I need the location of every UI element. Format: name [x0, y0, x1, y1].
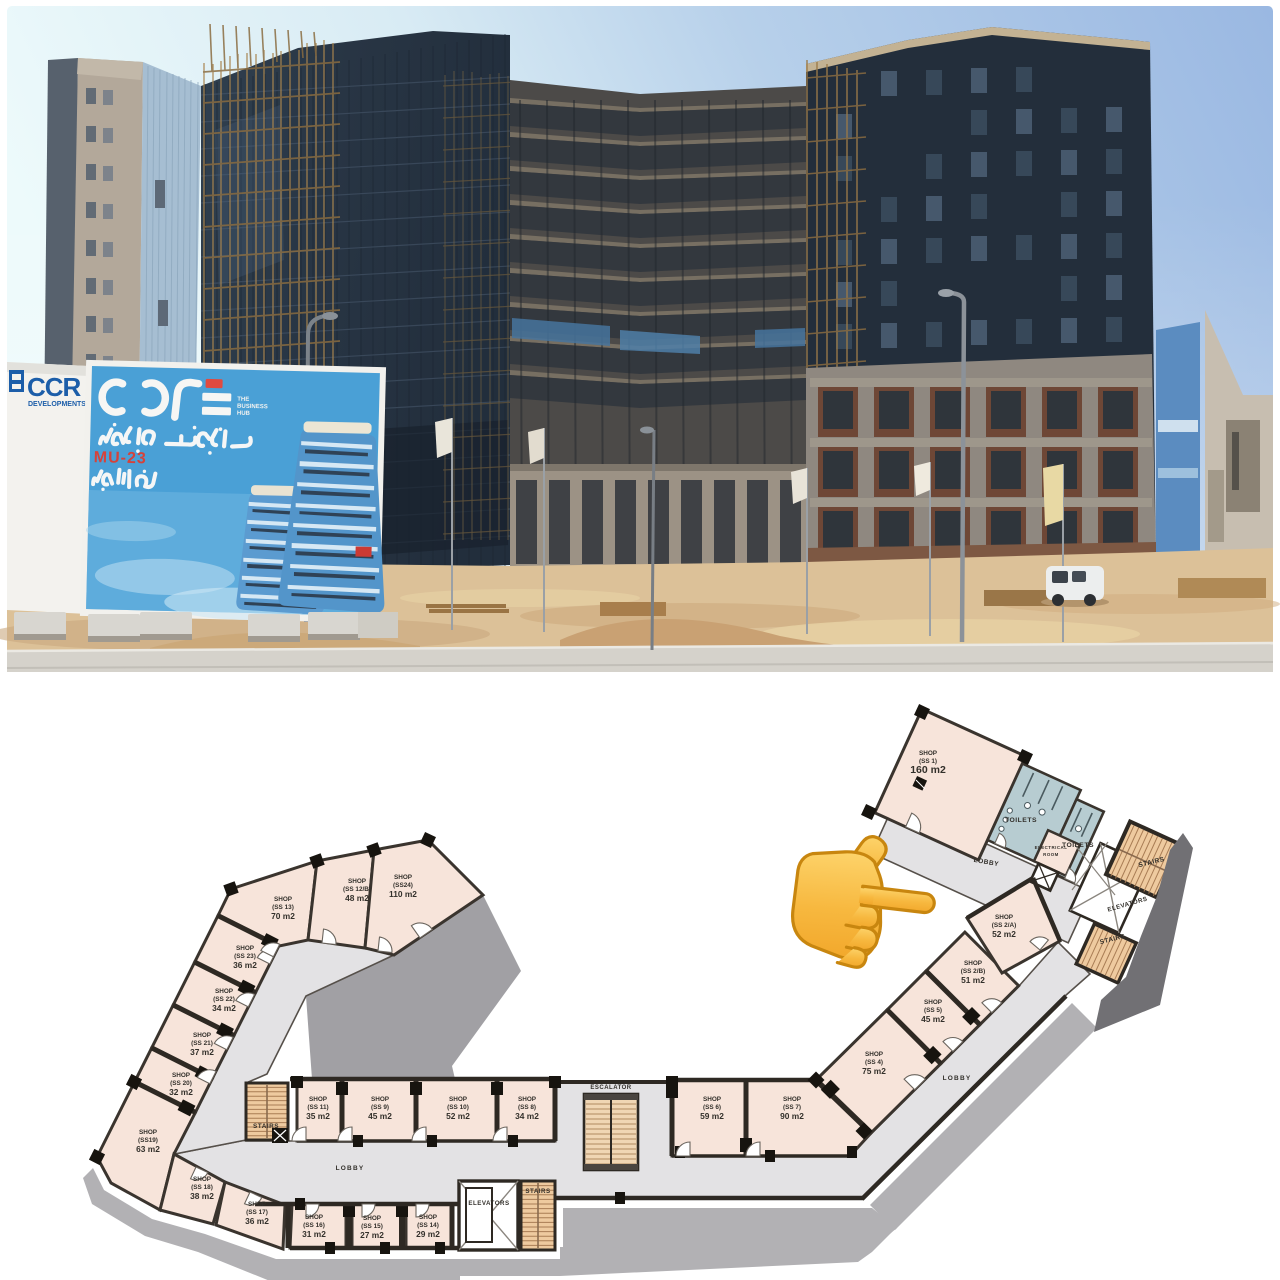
svg-text:35 m2: 35 m2	[306, 1111, 330, 1121]
svg-text:(SS 11): (SS 11)	[307, 1104, 328, 1111]
svg-text:48 m2: 48 m2	[345, 893, 369, 903]
svg-text:ESCALATOR: ESCALATOR	[590, 1085, 631, 1091]
svg-text:SHOP: SHOP	[783, 1096, 802, 1103]
svg-text:52 m2: 52 m2	[446, 1111, 470, 1121]
svg-text:(SS 4): (SS 4)	[865, 1059, 883, 1066]
svg-text:70 m2: 70 m2	[271, 911, 295, 921]
svg-text:(SS24): (SS24)	[393, 882, 413, 889]
svg-text:59 m2: 59 m2	[700, 1111, 724, 1121]
svg-text:(SS 13): (SS 13)	[272, 904, 294, 911]
svg-text:SHOP: SHOP	[371, 1096, 390, 1103]
svg-text:DEVELOPMENTS: DEVELOPMENTS	[28, 401, 86, 408]
svg-text:ELECTRICAL: ELECTRICAL	[1035, 845, 1068, 850]
svg-text:SHOP: SHOP	[193, 1032, 212, 1039]
svg-text:63 m2: 63 m2	[136, 1144, 160, 1154]
svg-text:SHOP: SHOP	[363, 1215, 382, 1222]
svg-text:SHOP: SHOP	[518, 1096, 537, 1103]
svg-text:(SS 23): (SS 23)	[234, 953, 256, 960]
svg-text:(SS 5): (SS 5)	[924, 1007, 942, 1014]
svg-text:160 m2: 160 m2	[910, 764, 946, 776]
svg-text:(SS 10): (SS 10)	[447, 1104, 469, 1111]
svg-text:29 m2: 29 m2	[416, 1229, 440, 1239]
svg-text:110 m2: 110 m2	[389, 889, 417, 899]
svg-text:SHOP: SHOP	[703, 1096, 722, 1103]
svg-text:SHOP: SHOP	[964, 960, 983, 967]
svg-text:(SS 16): (SS 16)	[303, 1222, 325, 1229]
svg-text:(SS 20): (SS 20)	[170, 1080, 192, 1087]
svg-text:(SS 8): (SS 8)	[518, 1104, 536, 1111]
svg-text:(SS 18): (SS 18)	[191, 1184, 213, 1191]
svg-text:BUSINESS: BUSINESS	[237, 404, 268, 411]
svg-text:SHOP: SHOP	[248, 1201, 267, 1208]
svg-text:SHOP: SHOP	[236, 945, 255, 952]
svg-text:(SS 15): (SS 15)	[361, 1223, 383, 1230]
svg-text:SHOP: SHOP	[215, 988, 234, 995]
svg-text:(SS19): (SS19)	[138, 1137, 158, 1144]
svg-text:SHOP: SHOP	[348, 878, 367, 885]
svg-text:SHOP: SHOP	[394, 874, 413, 881]
svg-text:(SS 14): (SS 14)	[417, 1222, 439, 1229]
svg-text:MU-23: MU-23	[94, 449, 147, 467]
svg-text:SHOP: SHOP	[172, 1072, 191, 1079]
svg-text:34 m2: 34 m2	[212, 1003, 236, 1013]
svg-text:32 m2: 32 m2	[169, 1087, 193, 1097]
svg-text:TOILETS: TOILETS	[1005, 817, 1037, 824]
svg-text:ROOM: ROOM	[1043, 852, 1059, 857]
svg-text:51 m2: 51 m2	[961, 975, 985, 985]
svg-text:(SS 6): (SS 6)	[703, 1104, 721, 1111]
svg-text:SHOP: SHOP	[309, 1096, 328, 1103]
svg-text:(SS 21): (SS 21)	[191, 1040, 213, 1047]
svg-text:34 m2: 34 m2	[515, 1111, 539, 1121]
svg-text:37 m2: 37 m2	[190, 1047, 214, 1057]
svg-text:LOBBY: LOBBY	[336, 1165, 365, 1172]
svg-text:(SS 17): (SS 17)	[246, 1209, 268, 1216]
svg-text:SHOP: SHOP	[305, 1214, 324, 1221]
svg-text:36 m2: 36 m2	[245, 1216, 269, 1226]
svg-text:36 m2: 36 m2	[233, 960, 257, 970]
svg-text:(SS 2/A): (SS 2/A)	[992, 922, 1017, 929]
svg-text:STAIRS: STAIRS	[525, 1188, 550, 1195]
svg-text:LOBBY: LOBBY	[943, 1075, 972, 1082]
svg-text:27 m2: 27 m2	[360, 1230, 384, 1240]
svg-text:SHOP: SHOP	[419, 1214, 438, 1221]
svg-text:(SS 7): (SS 7)	[783, 1104, 801, 1111]
svg-text:(SS 2/B): (SS 2/B)	[961, 968, 986, 975]
svg-text:45 m2: 45 m2	[368, 1111, 392, 1121]
svg-text:SHOP: SHOP	[865, 1051, 884, 1058]
svg-text:CCR: CCR	[27, 372, 82, 402]
svg-text:(SS 12/B): (SS 12/B)	[343, 886, 371, 893]
svg-text:SHOP: SHOP	[193, 1176, 212, 1183]
svg-text:SHOP: SHOP	[274, 896, 293, 903]
svg-text:THE: THE	[237, 397, 249, 403]
svg-text:90 m2: 90 m2	[780, 1111, 804, 1121]
svg-text:(SS 22): (SS 22)	[213, 996, 235, 1003]
svg-text:SHOP: SHOP	[449, 1096, 468, 1103]
svg-text:52 m2: 52 m2	[992, 929, 1016, 939]
svg-text:HUB: HUB	[237, 411, 251, 417]
svg-text:45 m2: 45 m2	[921, 1014, 945, 1024]
svg-text:38 m2: 38 m2	[190, 1191, 214, 1201]
svg-text:SHOP: SHOP	[139, 1129, 158, 1136]
svg-text:SHOP: SHOP	[919, 750, 938, 757]
svg-text:SHOP: SHOP	[995, 914, 1014, 921]
svg-text:75 m2: 75 m2	[862, 1066, 886, 1076]
svg-text:ELEVATORS: ELEVATORS	[468, 1200, 509, 1207]
svg-text:(SS 9): (SS 9)	[371, 1104, 389, 1111]
svg-text:SHOP: SHOP	[924, 999, 943, 1006]
svg-text:31 m2: 31 m2	[302, 1229, 326, 1239]
